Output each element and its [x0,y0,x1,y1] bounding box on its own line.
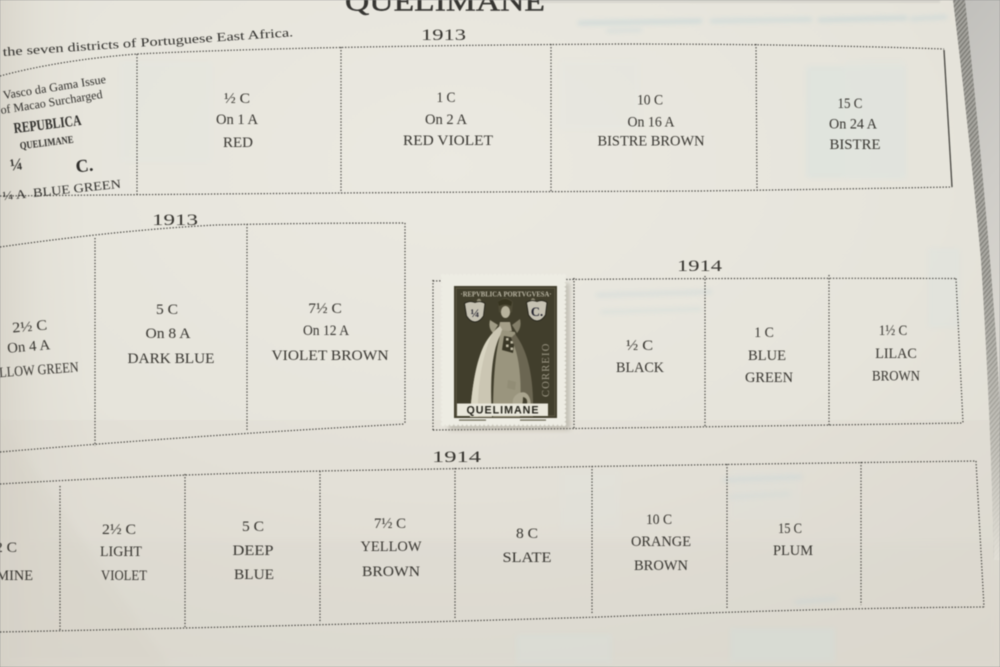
svg-text:DEEP: DEEP [233,543,274,559]
svg-text:¼: ¼ [471,306,480,320]
svg-text:1½ C: 1½ C [879,323,908,339]
svg-text:BROWN: BROWN [634,558,689,574]
svg-text:1913: 1913 [152,212,198,229]
svg-text:¼: ¼ [9,154,24,174]
svg-text:LIGHT: LIGHT [100,544,142,560]
svg-text:2½ C: 2½ C [12,318,48,337]
svg-text:ORANGE: ORANGE [631,534,691,550]
svg-text:On 24 A: On 24 A [829,117,878,133]
svg-text:SLATE: SLATE [503,550,552,566]
svg-text:On 12 A: On 12 A [303,323,349,339]
svg-text:10 C: 10 C [646,512,672,528]
svg-text:BLUE: BLUE [748,348,786,364]
svg-text:CORREIO: CORREIO [541,343,552,398]
svg-text:C.: C. [531,305,543,319]
svg-text:15 C: 15 C [838,96,863,112]
svg-text:RED: RED [223,135,253,151]
svg-text:On 1 A: On 1 A [216,112,259,128]
svg-text:5 C: 5 C [156,302,178,318]
svg-text:QUELIMANE: QUELIMANE [345,0,545,17]
svg-text:BROWN: BROWN [872,369,920,385]
svg-text:1914: 1914 [432,449,481,466]
svg-text:1914: 1914 [677,258,722,275]
svg-text:On 2 A: On 2 A [425,112,468,128]
svg-text:On 16 A: On 16 A [628,115,675,131]
svg-text:BLUE: BLUE [234,567,274,583]
svg-text:½ C: ½ C [224,91,250,107]
svg-text:BROWN: BROWN [362,564,421,580]
svg-text:RED VIOLET: RED VIOLET [403,133,493,149]
svg-text:1 C: 1 C [437,90,456,106]
svg-text:5 C: 5 C [242,519,264,535]
svg-text:7½ C: 7½ C [374,516,406,532]
svg-text:BLACK: BLACK [616,360,665,376]
svg-text:10 C: 10 C [637,93,663,109]
svg-text:DARK BLUE: DARK BLUE [128,351,215,367]
svg-text:CARMINE: CARMINE [0,568,33,584]
svg-text:1 C: 1 C [754,325,774,341]
svg-text:2 C: 2 C [0,540,17,556]
svg-text:15 C: 15 C [778,521,802,537]
svg-text:PLUM: PLUM [773,543,813,559]
svg-text:QUELIMANE: QUELIMANE [467,405,540,417]
svg-text:·REPVBLICA PORTVGVESA·: ·REPVBLICA PORTVGVESA· [461,291,552,299]
svg-text:2½ C: 2½ C [102,522,136,538]
svg-text:7½ C: 7½ C [308,301,342,317]
svg-text:1913: 1913 [421,27,466,44]
svg-text:YELLOW: YELLOW [361,539,422,555]
svg-text:8 C: 8 C [516,526,538,542]
svg-text:½ C: ½ C [626,338,653,354]
svg-text:C.: C. [74,155,94,177]
svg-text:GREEN: GREEN [745,370,794,386]
svg-text:LILAC: LILAC [875,346,917,362]
svg-text:On 8 A: On 8 A [146,326,192,342]
svg-text:BISTRE BROWN: BISTRE BROWN [598,134,706,150]
svg-text:VIOLET BROWN: VIOLET BROWN [272,348,390,364]
svg-text:VIOLET: VIOLET [101,568,147,584]
svg-text:BISTRE: BISTRE [830,137,881,153]
